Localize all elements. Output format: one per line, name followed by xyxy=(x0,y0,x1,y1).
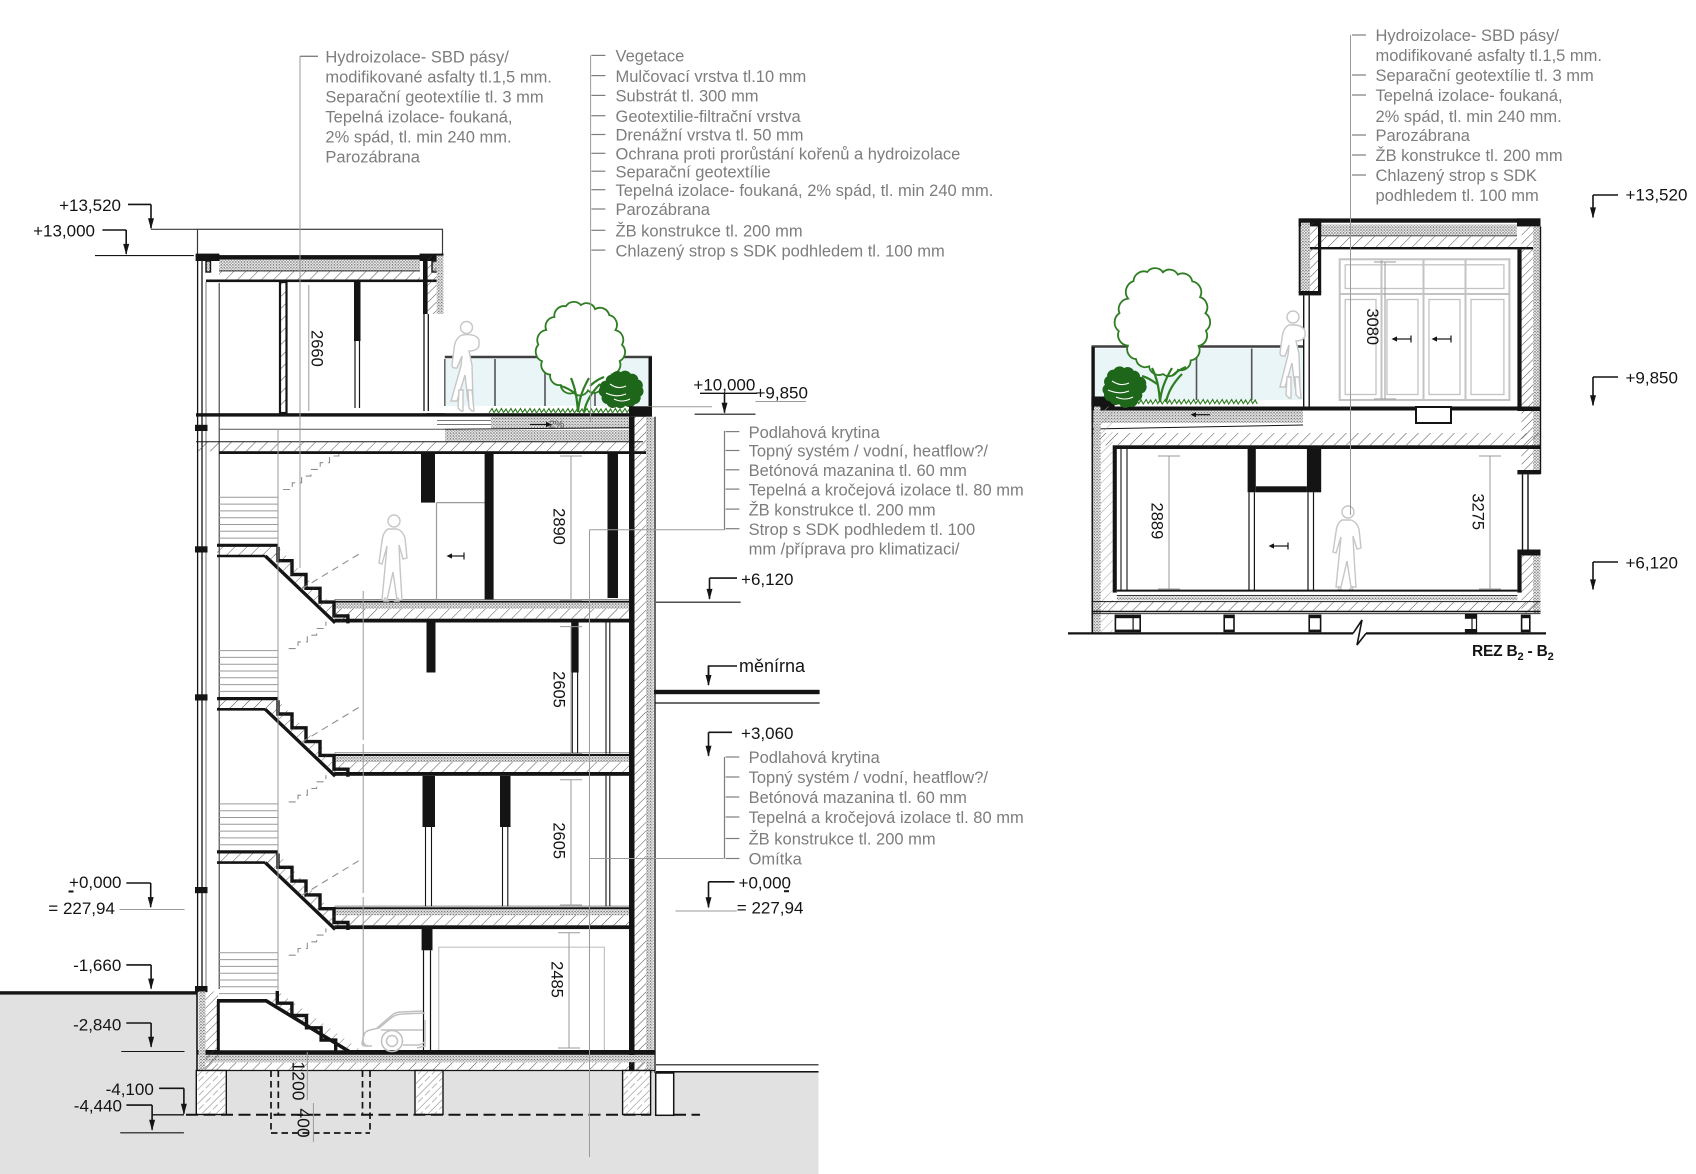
svg-text:mm /příprava pro klimatizaci/: mm /příprava pro klimatizaci/ xyxy=(749,540,960,558)
svg-text:Betónová mazanina tl. 60 mm: Betónová mazanina tl. 60 mm xyxy=(749,789,967,807)
svg-text:Tepelná a kročejová izolace tl: Tepelná a kročejová izolace tl. 80 mm xyxy=(749,809,1024,827)
svg-text:Mulčovací vrstva tl.10 mm: Mulčovací vrstva tl.10 mm xyxy=(616,68,807,86)
svg-text:+10,000: +10,000 xyxy=(693,376,755,395)
svg-text:2485: 2485 xyxy=(548,961,566,998)
svg-text:2605: 2605 xyxy=(550,671,568,708)
svg-text:Separační geotextílie tl. 3 mm: Separační geotextílie tl. 3 mm xyxy=(325,89,543,107)
svg-text:Vegetace: Vegetace xyxy=(616,48,685,66)
svg-text:ŽB konstrukce tl. 200 mm: ŽB konstrukce tl. 200 mm xyxy=(1376,146,1563,165)
svg-text:2%: 2% xyxy=(549,419,564,431)
svg-text:Drenážní vrstva tl. 50 mm: Drenážní vrstva tl. 50 mm xyxy=(616,127,804,145)
svg-text:400: 400 xyxy=(294,1108,314,1137)
svg-text:Hydroizolace- SBD pásy/: Hydroizolace- SBD pásy/ xyxy=(325,49,509,67)
svg-text:2660: 2660 xyxy=(308,330,326,367)
svg-text:Separační geotextílie tl. 3 mm: Separační geotextílie tl. 3 mm xyxy=(1376,67,1594,85)
svg-text:Podlahová krytina: Podlahová krytina xyxy=(749,424,881,442)
svg-text:+6,120: +6,120 xyxy=(1626,554,1678,573)
svg-text:+3,060: +3,060 xyxy=(741,724,793,743)
svg-text:Tepelná izolace- foukaná, 2% s: Tepelná izolace- foukaná, 2% spád, tl. m… xyxy=(616,182,994,200)
svg-text:3275: 3275 xyxy=(1469,493,1487,530)
svg-text:Betónová mazanina tl. 60 mm: Betónová mazanina tl. 60 mm xyxy=(749,462,967,480)
svg-text:Ochrana proti prorůstání kořen: Ochrana proti prorůstání kořenů a hydroi… xyxy=(616,146,961,164)
svg-text:2890: 2890 xyxy=(550,508,568,545)
svg-text:Substrát tl. 300 mm: Substrát tl. 300 mm xyxy=(616,88,759,106)
svg-text:-1,660: -1,660 xyxy=(73,956,121,975)
svg-text:2% spád, tl. min 240 mm.: 2% spád, tl. min 240 mm. xyxy=(325,129,511,147)
svg-text:+13,520: +13,520 xyxy=(59,196,121,215)
svg-text:Strop s SDK podhledem tl. 100: Strop s SDK podhledem tl. 100 xyxy=(749,521,976,539)
svg-text:Chlazený strop s SDK: Chlazený strop s SDK xyxy=(1376,167,1537,185)
svg-text:Tepelná izolace- foukaná,: Tepelná izolace- foukaná, xyxy=(1376,87,1563,105)
svg-text:2889: 2889 xyxy=(1148,503,1166,540)
svg-text:ŽB konstrukce tl. 200 mm: ŽB konstrukce tl. 200 mm xyxy=(616,222,803,241)
svg-text:Geotextilie-filtrační vrstva: Geotextilie-filtrační vrstva xyxy=(616,108,802,126)
svg-text:Parozábrana: Parozábrana xyxy=(325,149,420,167)
svg-text:2605: 2605 xyxy=(550,822,568,859)
svg-text:Tepelná a kročejová izolace tl: Tepelná a kročejová izolace tl. 80 mm xyxy=(749,481,1024,499)
svg-text:+6,120: +6,120 xyxy=(741,570,793,589)
svg-text:modifikované asfalty tl.1,5 mm: modifikované asfalty tl.1,5 mm. xyxy=(1376,47,1603,65)
svg-text:= 227,94: = 227,94 xyxy=(737,899,804,918)
svg-text:+0,000: +0,000 xyxy=(69,873,121,892)
svg-text:Tepelná izolace- foukaná,: Tepelná izolace- foukaná, xyxy=(325,109,512,127)
svg-text:Hydroizolace- SBD pásy/: Hydroizolace- SBD pásy/ xyxy=(1376,27,1560,45)
svg-text:Topný systém / vodní, heatflow: Topný systém / vodní, heatflow?/ xyxy=(749,443,989,461)
svg-text:Chlazený strop s SDK podhledem: Chlazený strop s SDK podhledem tl. 100 m… xyxy=(616,242,945,260)
svg-text:modifikované asfalty tl.1,5 mm: modifikované asfalty tl.1,5 mm. xyxy=(325,69,552,87)
svg-text:1200: 1200 xyxy=(289,1062,309,1101)
svg-text:+0,000: +0,000 xyxy=(739,874,791,893)
svg-text:3080: 3080 xyxy=(1363,308,1381,345)
svg-text:Parozábrana: Parozábrana xyxy=(616,201,711,219)
svg-text:Omítka: Omítka xyxy=(749,851,803,869)
svg-text:+9,850: +9,850 xyxy=(756,384,808,403)
svg-text:Parozábrana: Parozábrana xyxy=(1376,127,1471,145)
svg-text:2% spád, tl. min 240 mm.: 2% spád, tl. min 240 mm. xyxy=(1376,108,1562,126)
svg-text:+13,520: +13,520 xyxy=(1626,186,1688,205)
svg-text:Separační geotextílie: Separační geotextílie xyxy=(616,163,771,181)
svg-text:= 227,94: = 227,94 xyxy=(48,899,115,918)
svg-text:Topný systém / vodní, heatflow: Topný systém / vodní, heatflow?/ xyxy=(749,769,989,787)
svg-text:-2,840: -2,840 xyxy=(73,1016,121,1035)
svg-text:podhledem tl. 100 mm: podhledem tl. 100 mm xyxy=(1376,187,1539,205)
svg-text:+13,000: +13,000 xyxy=(33,222,95,241)
svg-text:-4,440: -4,440 xyxy=(74,1097,122,1116)
svg-text:ŽB konstrukce tl. 200 mm: ŽB konstrukce tl. 200 mm xyxy=(749,500,936,519)
svg-text:ŽB konstrukce tl. 200 mm: ŽB konstrukce tl. 200 mm xyxy=(749,830,936,849)
svg-text:měnírna: měnírna xyxy=(739,656,806,676)
svg-text:+9,850: +9,850 xyxy=(1626,369,1678,388)
svg-text:Podlahová krytina: Podlahová krytina xyxy=(749,749,881,767)
